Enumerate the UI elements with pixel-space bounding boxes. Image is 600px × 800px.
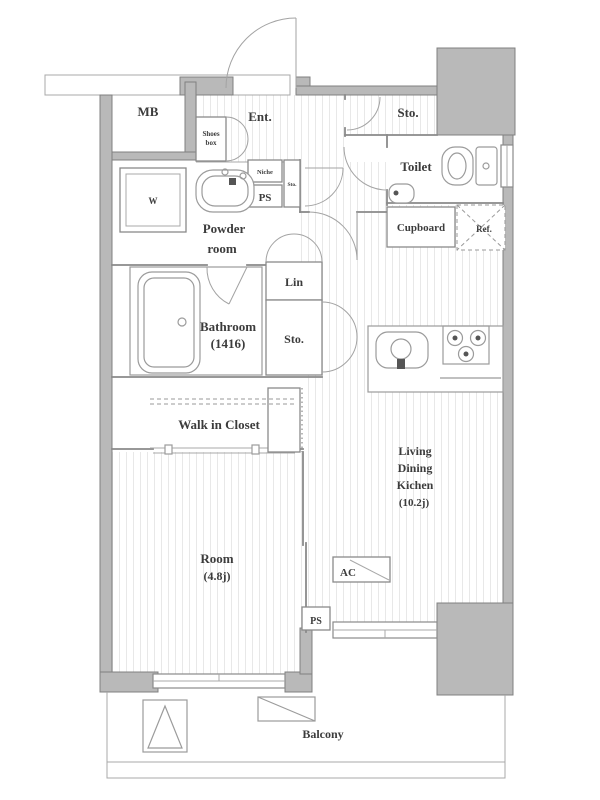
- pillar-bottom-right: [437, 603, 513, 695]
- floorplan-image: MB Ent. Shoes box Niche PS Sto. Powder r…: [0, 0, 600, 800]
- storage-mid-label: Sto.: [284, 332, 304, 346]
- niche-label: Niche: [257, 169, 273, 176]
- toilet-label: Toilet: [400, 159, 432, 174]
- pillar-top-right: [437, 48, 515, 135]
- toilet-tank: [476, 147, 497, 185]
- kitchen: [368, 326, 503, 392]
- svg-text:(10.2j): (10.2j): [399, 497, 430, 509]
- svg-text:room: room: [207, 241, 237, 256]
- balcony-label: Balcony: [302, 727, 343, 741]
- entrance-label: Ent.: [248, 109, 271, 124]
- kitchen-counter: [368, 326, 503, 392]
- svg-text:(4.8j): (4.8j): [204, 569, 231, 583]
- bathroom-label: Bathroom: [200, 319, 256, 334]
- storage-small-label: Sto.: [287, 182, 297, 188]
- refrigerator-label: Ref.: [476, 224, 492, 234]
- floorplan-drawing: MB Ent. Shoes box Niche PS Sto. Powder r…: [0, 0, 600, 800]
- washer-label: W: [149, 196, 158, 206]
- storage-top-label: Sto.: [397, 105, 418, 120]
- ac-label: AC: [340, 567, 356, 579]
- svg-text:(1416): (1416): [211, 336, 246, 351]
- faucet: [229, 178, 236, 185]
- pipe-space-lower-label: PS: [310, 616, 322, 627]
- mb-label: MB: [138, 104, 159, 119]
- room-label: Room: [200, 551, 233, 566]
- svg-text:Dining: Dining: [398, 461, 433, 475]
- shoes-box-label: Shoes: [202, 130, 219, 138]
- cupboard-label: Cupboard: [397, 222, 445, 234]
- walk-in-closet-label: Walk in Closet: [178, 417, 260, 432]
- powder-fixtures: [196, 169, 254, 212]
- svg-text:box: box: [206, 139, 217, 147]
- linen-label: Lin: [285, 275, 303, 289]
- ldk-label: Living: [398, 444, 431, 458]
- powder-room-label: Powder: [203, 221, 246, 236]
- corner-basin: [389, 184, 414, 203]
- closet-sub-box: [268, 388, 300, 452]
- pipe-space-upper-label: PS: [259, 192, 272, 204]
- bathtub: [138, 272, 200, 373]
- svg-text:Kichen: Kichen: [397, 478, 434, 492]
